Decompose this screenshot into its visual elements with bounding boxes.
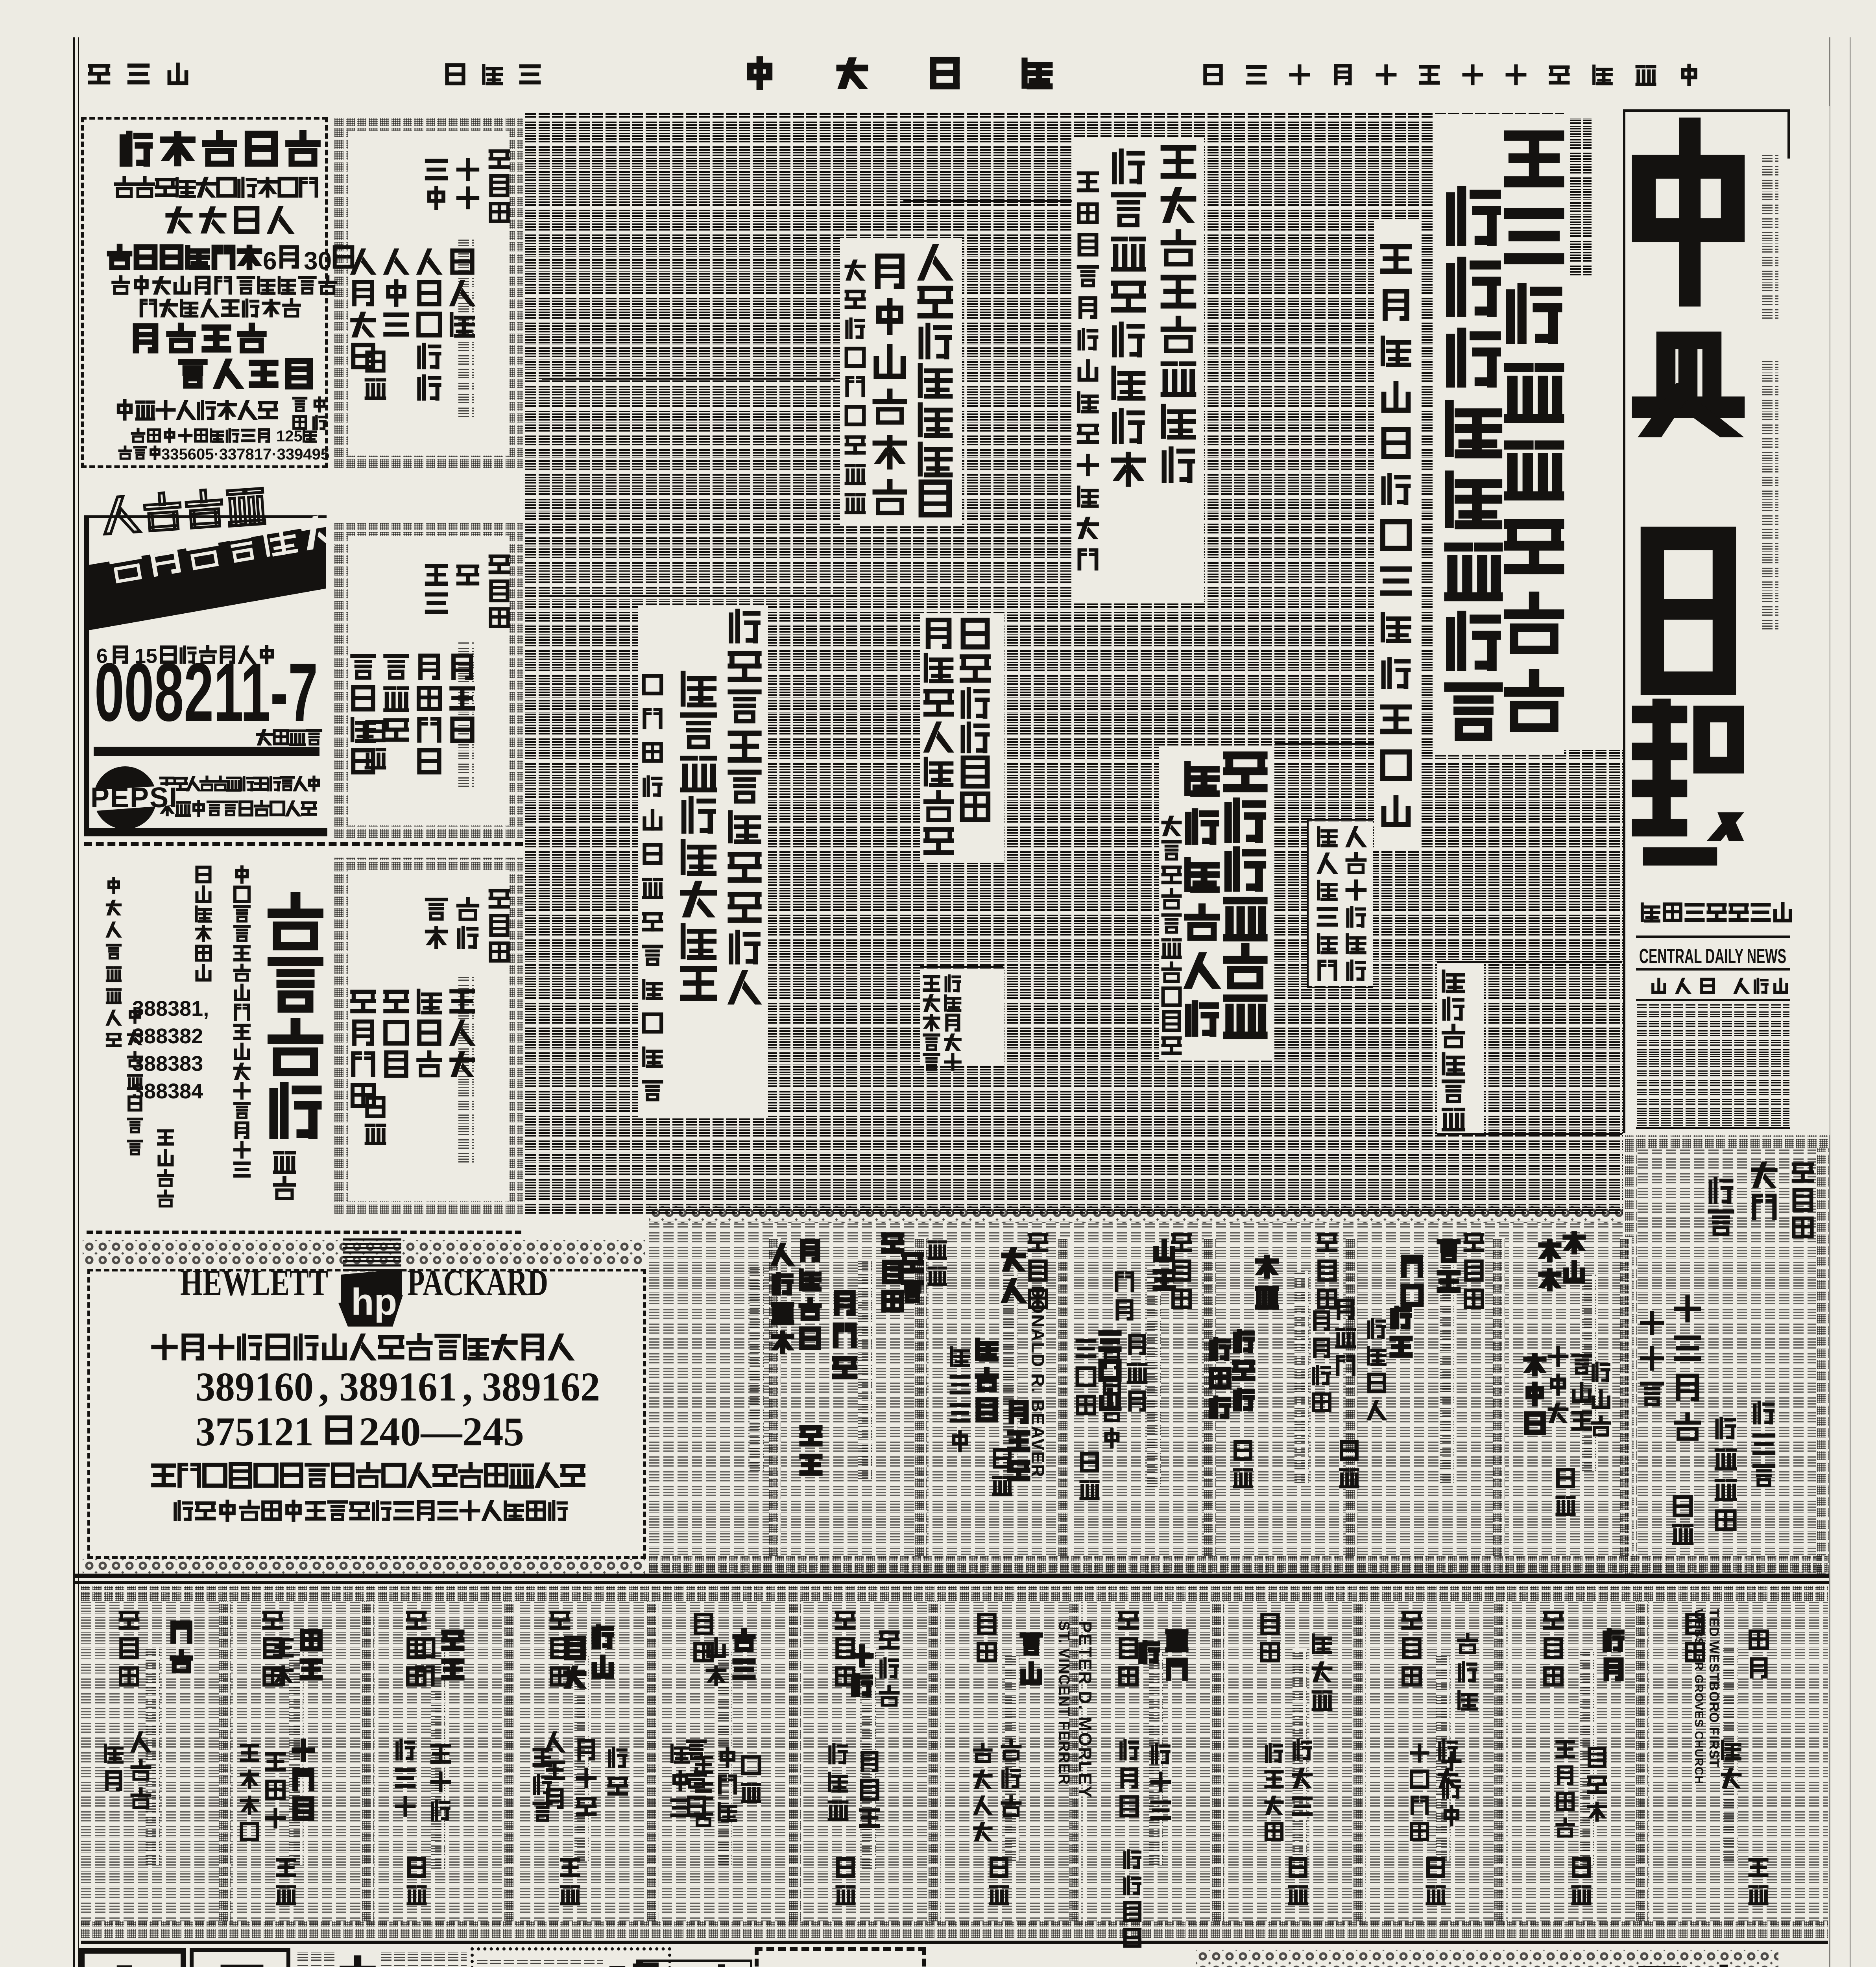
- svg-text:375121: 375121: [196, 1409, 314, 1454]
- svg-text:389160: 389160: [196, 1364, 314, 1410]
- svg-text:240—245: 240—245: [359, 1409, 524, 1454]
- svg-text:WEBSTER GROVES CHURCH: WEBSTER GROVES CHURCH: [1692, 1609, 1705, 1784]
- svg-text:,: ,: [319, 1364, 329, 1410]
- svg-text:125: 125: [276, 428, 303, 445]
- svg-text:,: ,: [462, 1364, 473, 1410]
- svg-text:388382: 388382: [132, 1024, 203, 1048]
- svg-text:30: 30: [304, 247, 332, 275]
- svg-text:388383: 388383: [132, 1052, 203, 1076]
- svg-text:008211-7: 008211-7: [94, 646, 318, 738]
- svg-text:388384: 388384: [132, 1079, 203, 1103]
- svg-text:DONALD R. BEAVER: DONALD R. BEAVER: [1028, 1286, 1048, 1478]
- svg-text:389161: 389161: [339, 1364, 457, 1410]
- svg-text:PACKARD: PACKARD: [407, 1262, 548, 1303]
- svg-text:6: 6: [263, 247, 277, 275]
- svg-text:389162: 389162: [482, 1364, 600, 1410]
- svg-text:CENTRAL DAILY NEWS: CENTRAL DAILY NEWS: [1639, 945, 1786, 968]
- svg-text:PETER D. MORLEY: PETER D. MORLEY: [1075, 1621, 1095, 1799]
- svg-text:388381,: 388381,: [132, 997, 209, 1020]
- svg-text:HEWLETT: HEWLETT: [180, 1262, 328, 1303]
- svg-text:hp: hp: [351, 1281, 397, 1323]
- svg-text:335605·337817·339495: 335605·337817·339495: [161, 446, 329, 463]
- svg-text:TED WESTBORO FIRST: TED WESTBORO FIRST: [1706, 1609, 1721, 1768]
- svg-text:ST. VINCENT FERRER: ST. VINCENT FERRER: [1056, 1621, 1072, 1785]
- svg-text:PEPSI: PEPSI: [90, 782, 178, 814]
